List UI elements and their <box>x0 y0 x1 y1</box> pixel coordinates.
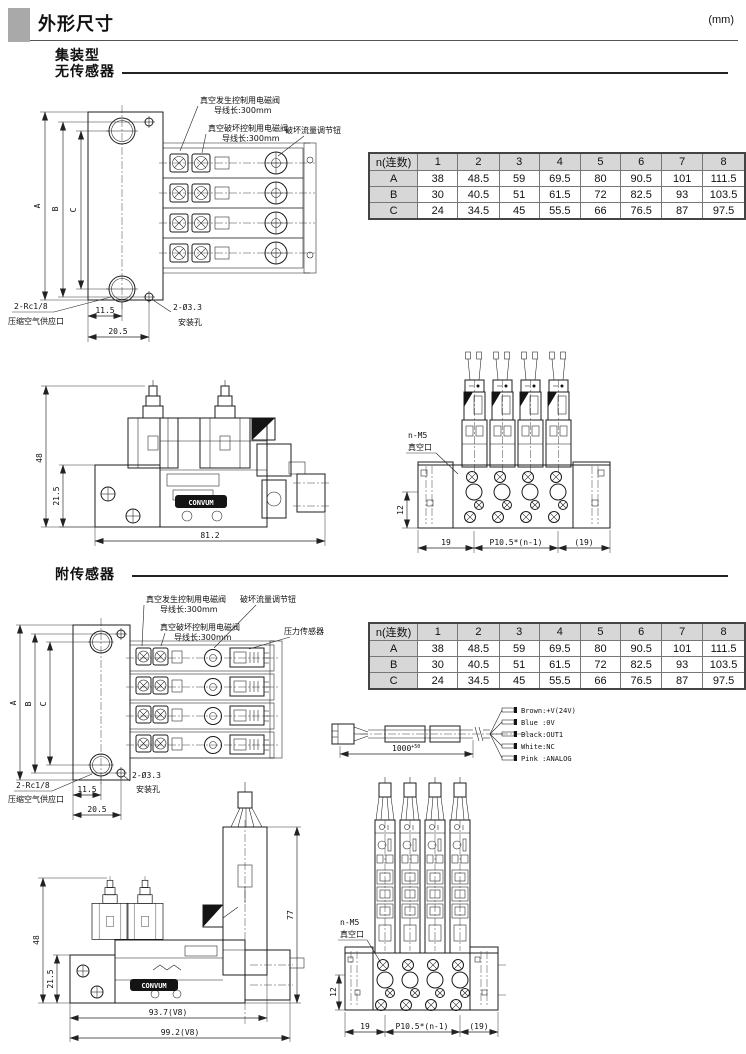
value-cell: 82.5 <box>621 187 662 203</box>
header-rule <box>30 40 738 41</box>
value-cell: 24 <box>418 673 458 690</box>
value-cell: 51 <box>499 657 539 673</box>
dim-48: 48 <box>35 453 44 463</box>
col-header: 1 <box>418 623 458 641</box>
table-row: B 30 40.5 51 61.5 72 82.5 93 103.5 <box>369 187 745 203</box>
dim-11-5: 11.5 <box>95 306 114 315</box>
subhead-with-sensor: 附传感器 <box>55 564 115 584</box>
value-cell: 82.5 <box>621 657 662 673</box>
col-header: 2 <box>458 153 499 171</box>
value-cell: 76.5 <box>621 203 662 220</box>
value-cell: 103.5 <box>703 657 745 673</box>
cable-drawing: Brown:+V(24V) Blue :0V Black:OUT1 White:… <box>330 700 740 770</box>
value-cell: 24 <box>418 203 458 220</box>
wire-label-black: Black:OUT1 <box>521 731 563 739</box>
label-brk-valve: 真空破坏控制用电磁阀 <box>160 622 240 632</box>
value-cell: 103.5 <box>703 187 745 203</box>
label-gen-lead: 导线长:300mm <box>214 105 272 115</box>
value-cell: 93 <box>662 187 703 203</box>
label-vacuum-port-sub: 真空口 <box>340 929 364 939</box>
value-cell: 72 <box>580 187 620 203</box>
dim-19-ref: (19) <box>469 1022 488 1031</box>
cable-body <box>360 726 530 742</box>
value-cell: 90.5 <box>621 171 662 187</box>
dim-pitch: P10.5*(n-1) <box>396 1022 449 1031</box>
value-cell: 45 <box>499 203 539 220</box>
col-header: 3 <box>499 623 539 641</box>
value-cell: 48.5 <box>458 641 499 657</box>
value-cell: 38 <box>418 641 458 657</box>
label-mount-hole: 2-Ø3.3 <box>173 302 202 312</box>
row-label: C <box>369 203 418 220</box>
plan-view-no-sensor: A B C 真空发生控制用电磁阀 导线长:300mm 真空破坏控制用电磁阀 导线… <box>8 85 363 350</box>
dim-20-5: 20.5 <box>108 327 127 336</box>
table-row: C 24 34.5 45 55.5 66 76.5 87 97.5 <box>369 203 745 220</box>
row-label: B <box>369 187 418 203</box>
manifold-plan <box>88 105 316 309</box>
row-label: B <box>369 657 418 673</box>
subhead-no-sensor: 无传感器 <box>55 61 115 81</box>
row-label: C <box>369 673 418 690</box>
dim-77: 77 <box>286 910 295 920</box>
col-header: 4 <box>539 623 580 641</box>
label-gen-valve: 真空发生控制用电磁阀 <box>200 95 280 105</box>
dim-a-label: A <box>33 203 42 208</box>
value-cell: 45 <box>499 673 539 690</box>
col-header: 5 <box>580 153 620 171</box>
table-row: B 30 40.5 51 61.5 72 82.5 93 103.5 <box>369 657 745 673</box>
col-header: 1 <box>418 153 458 171</box>
value-cell: 87 <box>662 203 703 220</box>
no-sensor-rule <box>122 72 728 74</box>
dim-b-label: B <box>51 206 60 211</box>
value-cell: 30 <box>418 187 458 203</box>
label-pressure-sensor: 压力传感器 <box>284 626 324 636</box>
dim-a-label: A <box>9 700 18 705</box>
wire-label-blue: Blue :0V <box>521 719 556 727</box>
value-cell: 93 <box>662 657 703 673</box>
value-cell: 69.5 <box>539 171 580 187</box>
dim-19-ref: (19) <box>574 538 593 547</box>
dim-19: 19 <box>360 1022 370 1031</box>
label-vacuum-port: n-M5 <box>340 918 359 927</box>
dimension-table-no-sensor: n(连数) 1 2 3 4 5 6 7 8 A 38 48.5 59 69.5 … <box>368 152 746 220</box>
value-cell: 87 <box>662 673 703 690</box>
value-cell: 48.5 <box>458 171 499 187</box>
value-cell: 76.5 <box>621 673 662 690</box>
value-cell: 38 <box>418 171 458 187</box>
value-cell: 55.5 <box>539 673 580 690</box>
value-cell: 111.5 <box>703 641 745 657</box>
dim-21-5: 21.5 <box>46 969 55 988</box>
col-header: 7 <box>662 623 703 641</box>
col-header: 8 <box>703 623 745 641</box>
manifold-front <box>418 352 610 528</box>
label-flow-knob: 破坏流量调节钮 <box>240 594 296 604</box>
dim-81-2: 81.2 <box>200 531 219 540</box>
ejector-side-sensor: CONVUM <box>70 782 304 1025</box>
value-cell: 111.5 <box>703 171 745 187</box>
dim-b-label: B <box>24 701 33 706</box>
label-flow-knob: 破坏流量调节钮 <box>285 125 341 135</box>
dim-12: 12 <box>329 987 338 997</box>
value-cell: 101 <box>662 171 703 187</box>
value-cell: 90.5 <box>621 641 662 657</box>
value-cell: 61.5 <box>539 187 580 203</box>
brand-logo: CONVUM <box>141 982 166 990</box>
col-header: 3 <box>499 153 539 171</box>
value-cell: 34.5 <box>458 203 499 220</box>
front-view-with-sensor: n-M5 真空口 12 19 P10.5*(n-1) (19) <box>335 775 635 1054</box>
table-row: A 38 48.5 59 69.5 80 90.5 101 111.5 <box>369 641 745 657</box>
label-brk-lead: 导线长:300mm <box>222 133 280 143</box>
label-air-port: 2-Rc1/8 <box>14 302 48 311</box>
label-mount-hole-sub: 安装孔 <box>178 317 202 327</box>
value-cell: 34.5 <box>458 673 499 690</box>
mounting-hole <box>143 116 155 128</box>
value-cell: 66 <box>580 203 620 220</box>
dim-19: 19 <box>441 538 451 547</box>
wire-label-pink: Pink :ANALOG <box>521 755 572 763</box>
col-header: 8 <box>703 153 745 171</box>
value-cell: 61.5 <box>539 657 580 673</box>
value-cell: 72 <box>580 657 620 673</box>
label-gen-lead: 导线长:300mm <box>160 604 218 614</box>
col-header: 5 <box>580 623 620 641</box>
dim-48: 48 <box>32 935 41 945</box>
label-brk-lead: 导线长:300mm <box>174 632 232 642</box>
dim-c-label: C <box>39 701 48 706</box>
table-row: C 24 34.5 45 55.5 66 76.5 87 97.5 <box>369 673 745 690</box>
col-header: 7 <box>662 153 703 171</box>
dim-12: 12 <box>396 505 405 515</box>
section-marker <box>8 8 30 42</box>
dim-93-7: 93.7(V8) <box>149 1008 188 1017</box>
col-header: n(连数) <box>369 153 418 171</box>
label-vacuum-port: n-M5 <box>408 431 427 440</box>
unit-label: (mm) <box>708 14 734 26</box>
page-title: 外形尺寸 <box>38 10 114 36</box>
value-cell: 101 <box>662 641 703 657</box>
table-header-row: n(连数) 1 2 3 4 5 6 7 8 <box>369 623 745 641</box>
wire-label-brown: Brown:+V(24V) <box>521 707 576 715</box>
manifold-plan-sensor <box>73 618 282 786</box>
value-cell: 40.5 <box>458 657 499 673</box>
row-label: A <box>369 171 418 187</box>
manifold-front-sensor <box>345 777 507 1011</box>
value-cell: 30 <box>418 657 458 673</box>
dim-21-5: 21.5 <box>52 486 61 505</box>
table-header-row: n(连数) 1 2 3 4 5 6 7 8 <box>369 153 745 171</box>
front-view-no-sensor: n-M5 真空口 12 19 P10.5*(n-1) (19) <box>400 350 645 565</box>
value-cell: 51 <box>499 187 539 203</box>
label-air-port-sub: 压缩空气供应口 <box>8 316 64 326</box>
label-mount-hole: 2-Ø3.3 <box>132 770 161 780</box>
mounting-hole <box>143 291 155 303</box>
ejector-side: CONVUM <box>95 380 331 527</box>
col-header: n(连数) <box>369 623 418 641</box>
wire-label-white: White:NC <box>521 743 555 751</box>
col-header: 6 <box>621 623 662 641</box>
dim-c-label: C <box>69 207 78 212</box>
value-cell: 66 <box>580 673 620 690</box>
value-cell: 80 <box>580 171 620 187</box>
table-row: A 38 48.5 59 69.5 80 90.5 101 111.5 <box>369 171 745 187</box>
value-cell: 40.5 <box>458 187 499 203</box>
value-cell: 59 <box>499 171 539 187</box>
row-label: A <box>369 641 418 657</box>
value-cell: 55.5 <box>539 203 580 220</box>
side-view-no-sensor: CONVUM 48 21.5 81.2 <box>35 378 365 563</box>
dim-99-2: 99.2(V8) <box>161 1028 200 1037</box>
value-cell: 97.5 <box>703 673 745 690</box>
value-cell: 59 <box>499 641 539 657</box>
dim-cable-length: 1000+50 <box>392 744 420 753</box>
value-cell: 69.5 <box>539 641 580 657</box>
catalog-page: 外形尺寸 (mm) 集装型 无传感器 <box>0 0 746 1054</box>
brand-logo: CONVUM <box>188 499 213 507</box>
label-brk-valve: 真空破坏控制用电磁阀 <box>208 123 288 133</box>
col-header: 6 <box>621 153 662 171</box>
with-sensor-rule <box>132 575 728 577</box>
side-view-with-sensor: CONVUM 48 21.5 77 93.7(V8) 99.2(V8) <box>35 780 335 1050</box>
value-cell: 97.5 <box>703 203 745 220</box>
value-cell: 80 <box>580 641 620 657</box>
label-vacuum-port-sub: 真空口 <box>408 442 432 452</box>
col-header: 2 <box>458 623 499 641</box>
col-header: 4 <box>539 153 580 171</box>
dimension-table-with-sensor: n(连数) 1 2 3 4 5 6 7 8 A 38 48.5 59 69.5 … <box>368 622 746 690</box>
label-gen-valve: 真空发生控制用电磁阀 <box>146 594 226 604</box>
dim-pitch: P10.5*(n-1) <box>490 538 543 547</box>
